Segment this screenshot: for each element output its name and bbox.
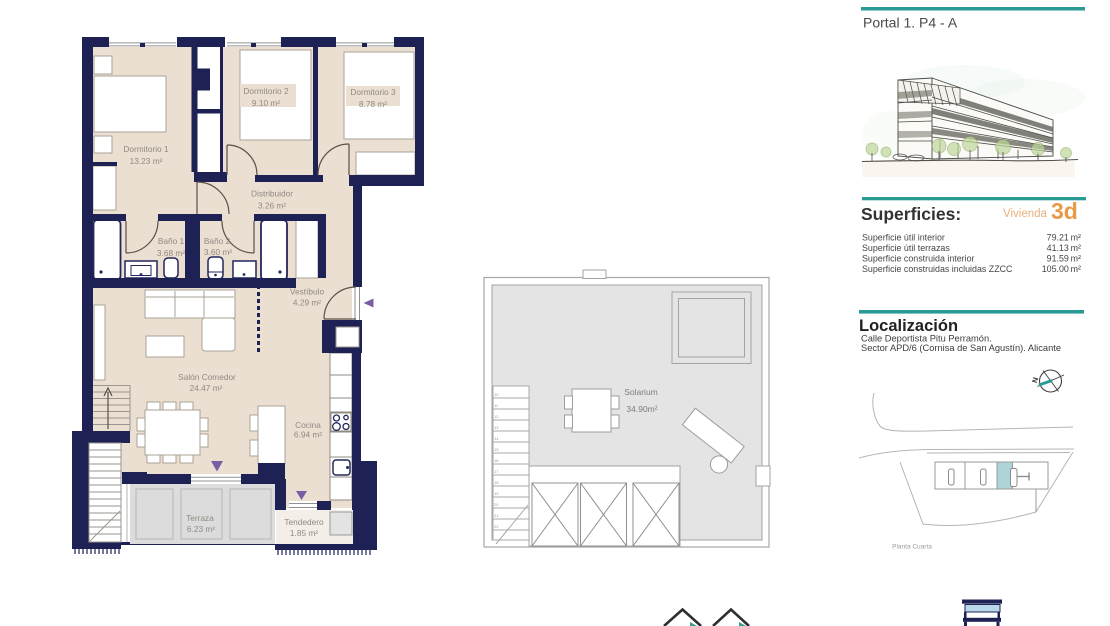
svg-text:8.78 m²: 8.78 m² bbox=[359, 99, 387, 109]
svg-text:41.13 m²: 41.13 m² bbox=[1047, 243, 1081, 253]
svg-text:9.10 m²: 9.10 m² bbox=[252, 98, 280, 108]
svg-text:Dormitorio 2: Dormitorio 2 bbox=[243, 86, 289, 96]
svg-text:13.23 m²: 13.23 m² bbox=[130, 156, 163, 166]
svg-text:18: 18 bbox=[494, 480, 499, 485]
svg-text:Vestíbulo: Vestíbulo bbox=[290, 287, 325, 297]
svg-text:Portal 1. P4 - A: Portal 1. P4 - A bbox=[863, 15, 958, 31]
svg-text:Baño 1: Baño 1 bbox=[158, 236, 185, 246]
svg-text:Superficie construidas incluid: Superficie construidas incluidas ZZCC bbox=[862, 264, 1013, 274]
svg-text:Cocina: Cocina bbox=[295, 420, 321, 430]
svg-text:Vivienda: Vivienda bbox=[1003, 208, 1048, 220]
svg-text:Superficie construida interior: Superficie construida interior bbox=[862, 254, 975, 264]
svg-text:21: 21 bbox=[494, 513, 499, 518]
svg-text:Terraza: Terraza bbox=[186, 513, 214, 523]
svg-text:Sector APD/6 (Cornisa de San A: Sector APD/6 (Cornisa de San Agustín). A… bbox=[861, 343, 1061, 353]
svg-text:19: 19 bbox=[494, 491, 499, 496]
svg-text:91.59 m²: 91.59 m² bbox=[1047, 254, 1081, 264]
svg-text:4.29 m²: 4.29 m² bbox=[293, 298, 321, 308]
svg-text:Solarium: Solarium bbox=[624, 387, 658, 397]
svg-text:17: 17 bbox=[494, 469, 499, 474]
svg-text:3.68 m²: 3.68 m² bbox=[157, 248, 185, 258]
svg-text:12: 12 bbox=[494, 414, 499, 419]
svg-text:Dormitorio 1: Dormitorio 1 bbox=[123, 144, 169, 154]
svg-text:79.21 m²: 79.21 m² bbox=[1047, 233, 1081, 243]
svg-text:14: 14 bbox=[494, 436, 499, 441]
svg-text:105.00 m²: 105.00 m² bbox=[1042, 264, 1081, 274]
svg-text:3d: 3d bbox=[1051, 198, 1078, 224]
svg-text:22: 22 bbox=[494, 524, 499, 529]
svg-text:24.47 m²: 24.47 m² bbox=[190, 383, 223, 393]
svg-text:Superficie útil interior: Superficie útil interior bbox=[862, 233, 945, 243]
svg-text:15: 15 bbox=[494, 447, 499, 452]
svg-text:1.85 m²: 1.85 m² bbox=[290, 528, 318, 538]
svg-text:Baño 2: Baño 2 bbox=[204, 236, 231, 246]
svg-text:Localización: Localización bbox=[859, 317, 958, 335]
svg-text:Superficies:: Superficies: bbox=[861, 204, 961, 224]
svg-text:10: 10 bbox=[494, 392, 499, 397]
svg-text:6.94 m²: 6.94 m² bbox=[294, 430, 322, 440]
svg-text:Distribuidor: Distribuidor bbox=[251, 189, 293, 199]
svg-text:Calle Deportista Pitu Perramón: Calle Deportista Pitu Perramón. bbox=[861, 334, 992, 344]
svg-text:20: 20 bbox=[494, 502, 499, 507]
svg-text:Dormitorio 3: Dormitorio 3 bbox=[350, 87, 396, 97]
svg-text:13: 13 bbox=[494, 425, 499, 430]
svg-text:16: 16 bbox=[494, 458, 499, 463]
svg-text:3.26 m²: 3.26 m² bbox=[258, 201, 286, 211]
svg-text:6.23 m²: 6.23 m² bbox=[187, 524, 215, 534]
svg-text:3.60 m²: 3.60 m² bbox=[204, 247, 232, 257]
svg-text:Superficie útil terrazas: Superficie útil terrazas bbox=[862, 243, 950, 253]
svg-text:Planta Cuarta: Planta Cuarta bbox=[892, 544, 932, 551]
svg-text:Salón Comedor: Salón Comedor bbox=[178, 372, 236, 382]
svg-text:Tendedero: Tendedero bbox=[284, 517, 324, 527]
svg-text:34.90m²: 34.90m² bbox=[626, 404, 657, 414]
